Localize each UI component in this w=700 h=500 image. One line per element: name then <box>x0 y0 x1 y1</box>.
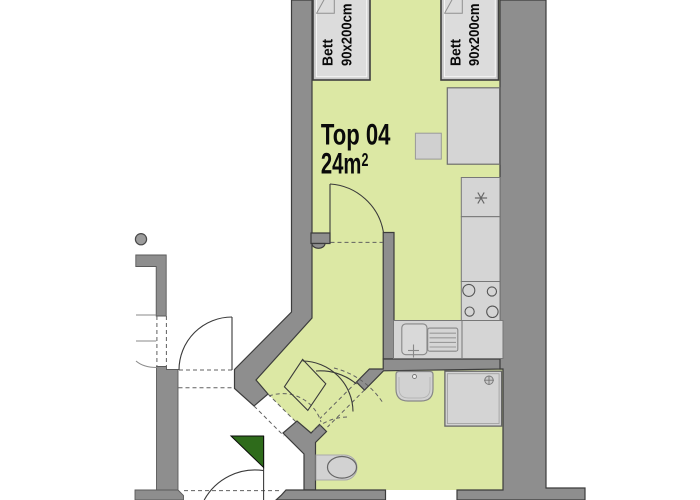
svg-text:Bett: Bett <box>449 39 465 66</box>
svg-text:90x200cm: 90x200cm <box>339 4 355 67</box>
svg-text:Bett: Bett <box>321 39 337 66</box>
svg-text:24m2: 24m2 <box>321 148 369 181</box>
svg-text:Top 04: Top 04 <box>321 118 391 151</box>
svg-text:90x200cm: 90x200cm <box>467 4 483 67</box>
